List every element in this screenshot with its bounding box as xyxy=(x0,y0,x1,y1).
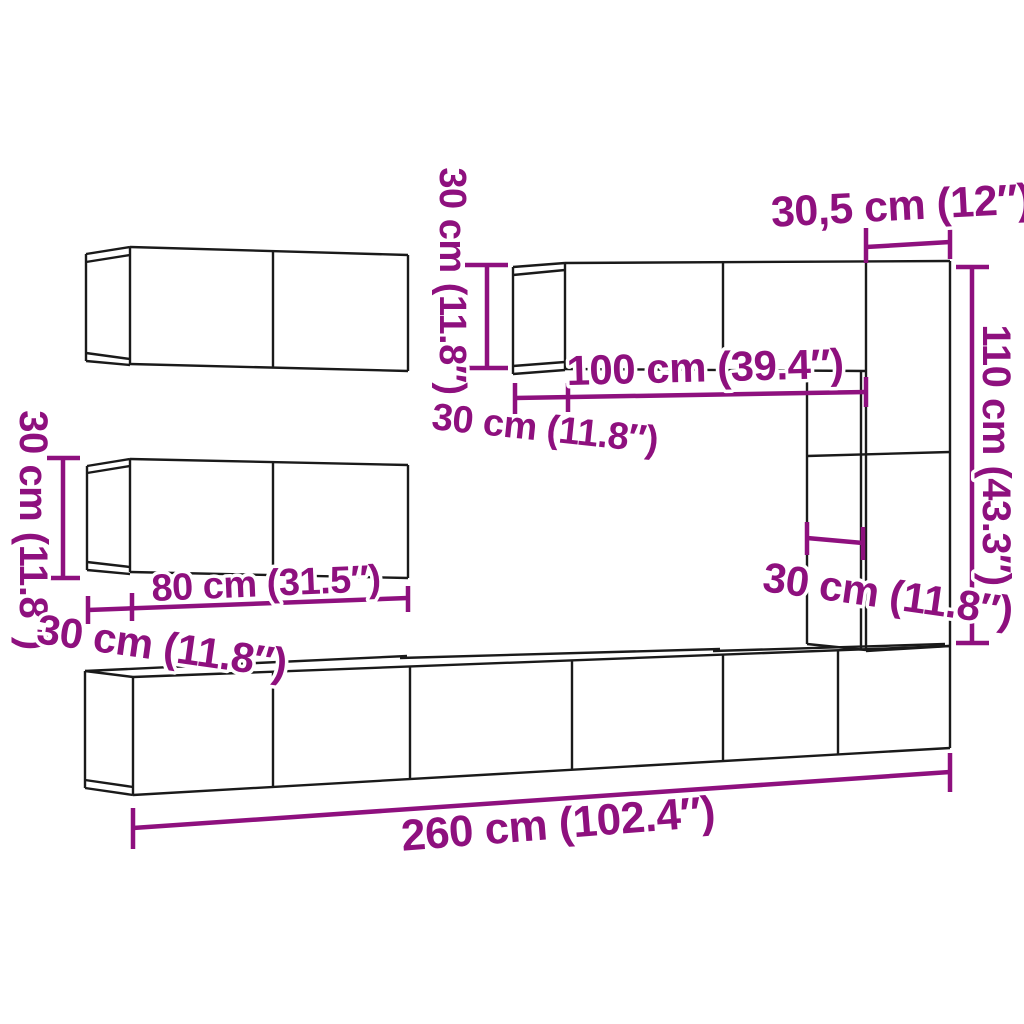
cabinet-edge xyxy=(86,255,130,262)
cabinet-edge xyxy=(87,459,130,466)
cabinet-edge xyxy=(130,459,408,465)
cabinet-edge xyxy=(86,247,130,254)
dimension-lines xyxy=(47,224,989,849)
label-column-height: 110 cm (43.3″) xyxy=(974,324,1018,585)
dimension-line xyxy=(807,538,863,543)
dimension-labels: 30 cm (11.8″)80 cm (31.5″)30 cm (11.8″)3… xyxy=(11,167,1024,860)
cabinet-edge xyxy=(130,364,408,371)
cabinet-edge xyxy=(87,466,130,473)
cabinet-edge xyxy=(513,362,565,366)
cabinet-edge xyxy=(85,780,133,787)
cabinet-edge xyxy=(513,270,565,275)
cabinet-edge xyxy=(807,452,950,456)
cabinet-structure-lines xyxy=(85,247,950,795)
cabinet-edge xyxy=(133,748,950,795)
cabinet-edge xyxy=(513,263,565,267)
label-left-cabinet-depth: 30 cm (11.8″) xyxy=(34,605,290,687)
label-top-cabinet-width: 100 cm (39.4″) xyxy=(566,340,844,394)
label-top-cabinet-height: 30 cm (11.8″) xyxy=(431,167,473,394)
cabinet-edge xyxy=(130,247,408,255)
cabinet-edge xyxy=(513,370,565,374)
cabinet-edge xyxy=(85,788,133,795)
cabinet-edge xyxy=(87,562,130,567)
cabinet-edge xyxy=(87,570,130,574)
cabinet-edge xyxy=(86,361,130,365)
furniture-dimension-diagram: 30 cm (11.8″)80 cm (31.5″)30 cm (11.8″)3… xyxy=(0,0,1024,1024)
cabinet-edge xyxy=(565,261,950,263)
cabinet-edge xyxy=(86,353,130,359)
label-top-cabinet-depth: 30 cm (11.8″) xyxy=(430,396,660,462)
dimension-line xyxy=(866,242,950,247)
label-column-width: 30,5 cm (12″) xyxy=(770,175,1024,237)
cabinet-edge xyxy=(85,671,133,677)
diagram-svg: 30 cm (11.8″)80 cm (31.5″)30 cm (11.8″)3… xyxy=(0,0,1024,1024)
